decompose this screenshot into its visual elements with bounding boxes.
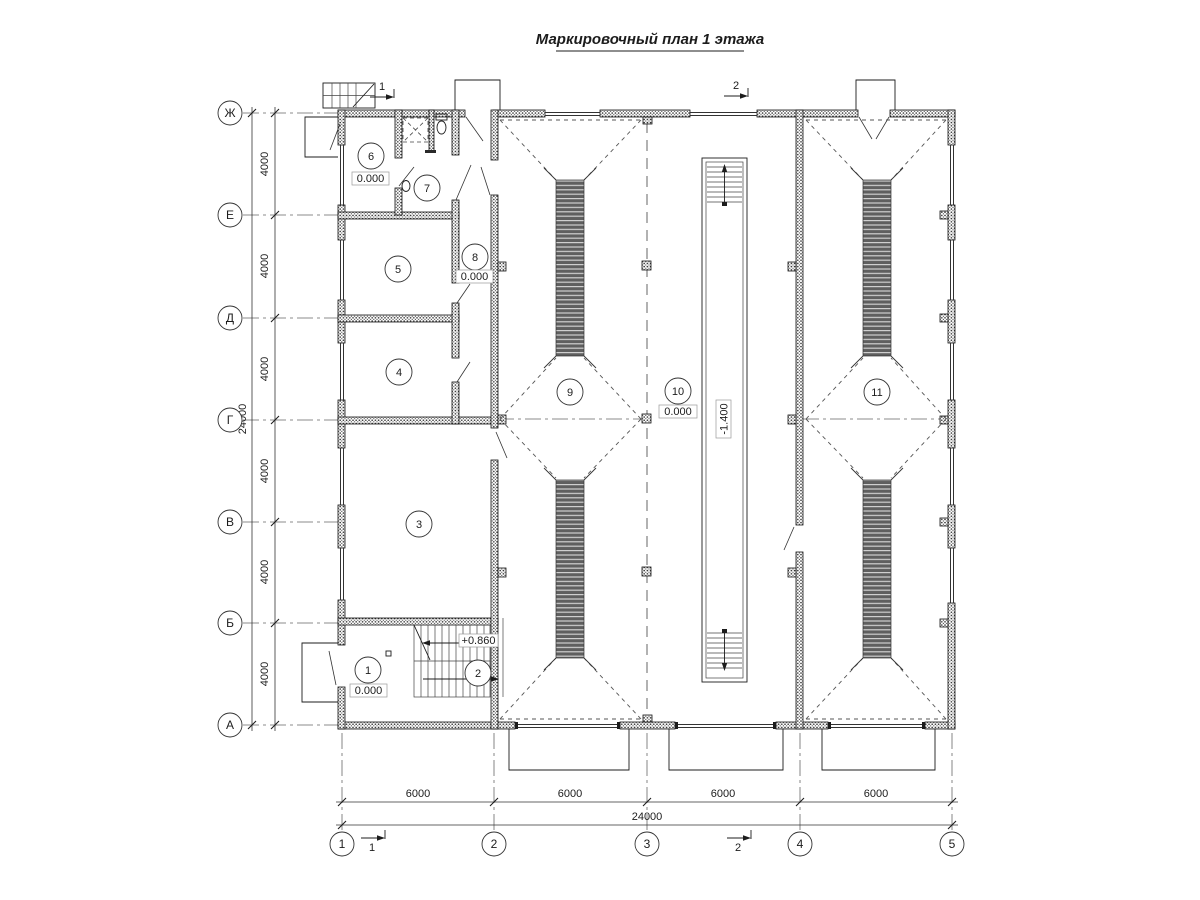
exterior-ramps — [509, 729, 935, 770]
dim-4000: 4000 — [259, 357, 271, 381]
pit-stair-top — [707, 164, 742, 206]
drawing-title: Маркировочный план 1 этажа — [536, 31, 764, 51]
axis-bubbles-bottom: 1 2 3 4 5 — [330, 832, 964, 856]
dim-6000: 6000 — [558, 788, 582, 800]
section-mark-1-bottom: 1 — [361, 830, 385, 854]
room-marker-10: 10 0.000 — [659, 378, 697, 418]
elevation-value: -1.400 — [719, 403, 731, 434]
axis-row-label: В — [226, 515, 234, 529]
room-marker-6: 6 0.000 — [352, 143, 389, 185]
axis-row-label: А — [226, 718, 234, 732]
elevation-value: 0.000 — [664, 406, 692, 418]
sink — [402, 181, 410, 192]
elevation-value: +0.860 — [462, 635, 496, 647]
dim-6000: 6000 — [406, 788, 430, 800]
room-number: 2 — [475, 668, 481, 680]
dim-24000-horizontal: 24000 — [632, 811, 663, 823]
room-number: 7 — [424, 183, 430, 195]
door-leaves — [329, 117, 889, 685]
room-marker-4: 4 — [386, 359, 412, 385]
dim-4000: 4000 — [259, 560, 271, 584]
dim-6000: 6000 — [711, 788, 735, 800]
axis-col-label: 1 — [339, 837, 346, 851]
section-mark-2-top: 2 — [724, 80, 748, 99]
dim-4000: 4000 — [259, 254, 271, 278]
room-number: 4 — [396, 367, 402, 379]
floor-plan-drawing: Маркировочный план 1 этажа 4000 4000 400… — [0, 0, 1200, 900]
dimension-left: 4000 4000 4000 4000 4000 4000 24000 — [237, 107, 279, 731]
room-number: 11 — [871, 387, 882, 399]
axis-col-label: 5 — [949, 837, 956, 851]
room-marker-7: 7 — [414, 175, 440, 201]
room-marker-1: 1 0.000 — [350, 657, 387, 697]
room-marker-8: 8 0.000 — [456, 244, 493, 283]
room-number: 5 — [395, 264, 401, 276]
entry-stair-top-left — [323, 83, 375, 108]
porches-canopies — [302, 80, 895, 702]
elevation-value: 0.000 — [461, 271, 489, 283]
axis-row-label: Г — [227, 413, 234, 427]
dim-4000: 4000 — [259, 152, 271, 176]
room-marker-3: 3 — [406, 511, 432, 537]
axis-col-label: 2 — [491, 837, 498, 851]
axis-row-label: Ж — [224, 106, 235, 120]
dim-4000: 4000 — [259, 662, 271, 686]
axis-row-label: Е — [226, 208, 234, 222]
room-number: 9 — [567, 387, 573, 399]
svg-text:2: 2 — [735, 842, 741, 854]
room-marker-9: 9 — [557, 379, 583, 405]
room-number: 10 — [672, 386, 684, 398]
axis-col-label: 4 — [797, 837, 804, 851]
svg-text:2: 2 — [733, 80, 739, 92]
gates — [515, 722, 925, 729]
svg-text:1: 1 — [369, 842, 375, 854]
section-mark-2-bottom: 2 — [727, 830, 751, 854]
room-marker-5: 5 — [385, 256, 411, 282]
dim-6000: 6000 — [864, 788, 888, 800]
room-marker-11: 11 — [864, 379, 890, 405]
svg-text:1: 1 — [379, 81, 385, 93]
dim-4000: 4000 — [259, 459, 271, 483]
axis-col-label: 3 — [644, 837, 651, 851]
elevation-value: 0.000 — [357, 173, 385, 185]
axis-row-label: Б — [226, 616, 234, 630]
pit-elevation-label: -1.400 — [716, 400, 731, 438]
room-number: 8 — [472, 252, 478, 264]
room-number: 1 — [365, 665, 371, 677]
axis-bubbles-left: Ж Е Д Г В Б А — [218, 101, 242, 737]
page-title: Маркировочный план 1 этажа — [536, 31, 764, 48]
elevation-value: 0.000 — [355, 685, 383, 697]
inspection-pit: -1.400 — [702, 158, 747, 682]
room-number: 3 — [416, 519, 422, 531]
room-number: 6 — [368, 151, 374, 163]
pit-stair-bottom — [707, 629, 742, 671]
axis-row-label: Д — [226, 311, 234, 325]
toilet-bowl — [437, 121, 446, 134]
